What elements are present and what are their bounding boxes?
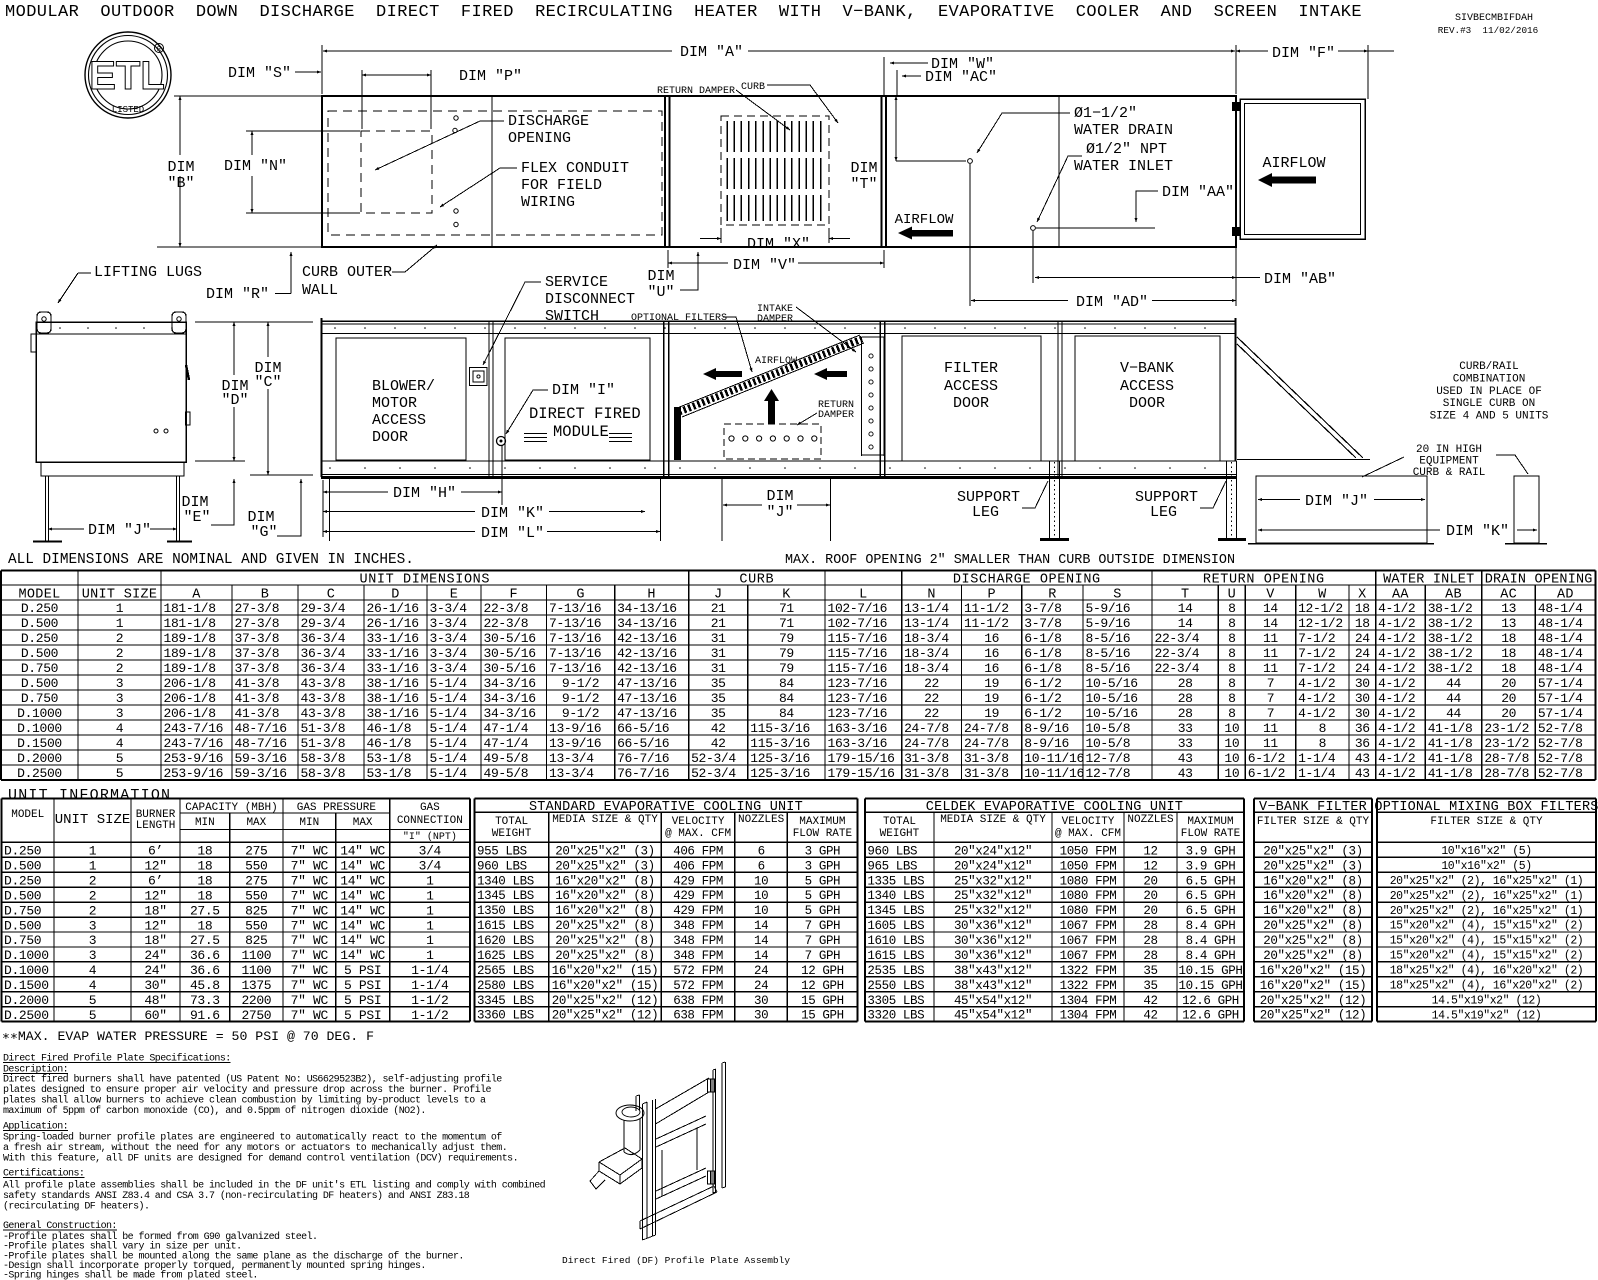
- svg-text:10-5/8: 10-5/8: [1086, 736, 1131, 751]
- svg-text:1615 LBS: 1615 LBS: [867, 949, 924, 963]
- svg-text:14″ WC: 14″ WC: [340, 858, 385, 873]
- svg-text:11-1/2: 11-1/2: [964, 616, 1009, 631]
- svg-text:TOTAL: TOTAL: [883, 816, 916, 828]
- svg-text:FLOW RATE: FLOW RATE: [793, 828, 853, 840]
- svg-text:D.750: D.750: [21, 661, 58, 676]
- svg-text:16″x20″x2″ (8): 16″x20″x2″ (8): [1263, 904, 1362, 918]
- svg-text:ACCESS: ACCESS: [1120, 378, 1174, 395]
- svg-text:MODULE: MODULE: [553, 423, 609, 441]
- svg-text:D.500: D.500: [21, 646, 58, 661]
- svg-text:AC: AC: [1500, 587, 1517, 602]
- svg-text:20″x25″x2″ (2), 16″x25″x2″ (1): 20″x25″x2″ (2), 16″x25″x2″ (1): [1390, 890, 1584, 903]
- svg-text:6.5 GPH: 6.5 GPH: [1186, 904, 1236, 918]
- svg-text:Direct fired burners shall hav: Direct fired burners shall have patented…: [3, 1074, 502, 1086]
- svg-text:102-7/16: 102-7/16: [828, 616, 888, 631]
- svg-text:14: 14: [754, 919, 768, 933]
- svg-text:X: X: [1358, 587, 1366, 602]
- svg-text:243-7/16: 243-7/16: [164, 721, 224, 736]
- svg-text:D.1500: D.1500: [17, 736, 62, 751]
- svg-text:R: R: [1048, 587, 1056, 602]
- svg-text:28-7/8: 28-7/8: [1484, 766, 1529, 781]
- svg-text:ACCESS: ACCESS: [944, 378, 998, 395]
- svg-text:2750: 2750: [241, 1008, 271, 1023]
- svg-text:K: K: [782, 587, 791, 602]
- svg-text:16″x20″x2″ (8): 16″x20″x2″ (8): [555, 904, 654, 918]
- svg-text:3: 3: [116, 706, 123, 721]
- svg-text:1620 LBS: 1620 LBS: [477, 934, 534, 948]
- svg-text:DIM ″L″: DIM ″L″: [481, 525, 544, 542]
- svg-text:DIM ″X″: DIM ″X″: [747, 236, 810, 253]
- svg-text:52-7/8: 52-7/8: [1538, 766, 1583, 781]
- svg-text:66-5/16: 66-5/16: [617, 721, 669, 736]
- svg-text:E: E: [450, 587, 458, 602]
- svg-text:H: H: [647, 587, 655, 602]
- svg-text:D.500: D.500: [21, 616, 58, 631]
- svg-text:16″x20″x2″ (8): 16″x20″x2″ (8): [555, 874, 654, 888]
- svg-text:30-5/16: 30-5/16: [484, 661, 536, 676]
- svg-text:13-9/16: 13-9/16: [549, 736, 601, 751]
- svg-text:20″x25″x2″ (3): 20″x25″x2″ (3): [1263, 859, 1362, 873]
- svg-text:7″ WC: 7″ WC: [291, 948, 329, 963]
- svg-text:22-3/4: 22-3/4: [1155, 631, 1200, 646]
- svg-text:38-1/2: 38-1/2: [1428, 601, 1473, 616]
- svg-text:5: 5: [89, 1008, 96, 1023]
- svg-text:25″x32″x12″: 25″x32″x12″: [954, 904, 1032, 918]
- svg-text:35: 35: [711, 676, 726, 691]
- svg-text:WATER INLET: WATER INLET: [1074, 158, 1173, 175]
- svg-text:18-3/4: 18-3/4: [904, 661, 949, 676]
- svg-text:4-1/2: 4-1/2: [1378, 706, 1415, 721]
- svg-text:115-7/16: 115-7/16: [828, 661, 888, 676]
- svg-text:MAXIMUM: MAXIMUM: [799, 816, 845, 828]
- svg-text:5-1/4: 5-1/4: [430, 691, 468, 706]
- svg-text:10: 10: [754, 904, 768, 918]
- svg-text:46-1/8: 46-1/8: [367, 736, 412, 751]
- svg-text:43: 43: [1355, 766, 1370, 781]
- svg-text:33: 33: [1178, 736, 1193, 751]
- svg-text:AIRFLOW: AIRFLOW: [895, 212, 954, 228]
- svg-text:7″ WC: 7″ WC: [291, 993, 329, 1008]
- svg-text:14″ WC: 14″ WC: [340, 844, 385, 859]
- svg-text:1-1/2: 1-1/2: [411, 993, 448, 1008]
- svg-text:1610 LBS: 1610 LBS: [867, 934, 924, 948]
- svg-text:V−BANK FILTER: V−BANK FILTER: [1259, 800, 1367, 815]
- svg-text:955 LBS: 955 LBS: [477, 844, 527, 858]
- svg-text:1322 FPM: 1322 FPM: [1060, 964, 1117, 978]
- svg-text:20: 20: [1143, 874, 1157, 888]
- svg-text:115-3/16: 115-3/16: [750, 721, 810, 736]
- svg-text:52-7/8: 52-7/8: [1538, 736, 1583, 751]
- svg-text:18: 18: [1501, 631, 1516, 646]
- svg-text:12-7/8: 12-7/8: [1086, 766, 1131, 781]
- svg-text:J: J: [714, 587, 722, 602]
- svg-text:43-3/8: 43-3/8: [301, 691, 346, 706]
- svg-text:42-13/16: 42-13/16: [617, 631, 677, 646]
- svg-text:53-1/8: 53-1/8: [367, 766, 412, 781]
- svg-text:429 FPM: 429 FPM: [673, 889, 723, 903]
- svg-text:38″x43″x12″: 38″x43″x12″: [954, 964, 1032, 978]
- svg-text:maximum of 5ppm of carbon mono: maximum of 5ppm of carbon monoxide (CO),…: [3, 1105, 426, 1117]
- svg-text:960 LBS: 960 LBS: [477, 859, 527, 873]
- svg-text:4-1/2: 4-1/2: [1378, 601, 1415, 616]
- svg-text:1322 FPM: 1322 FPM: [1060, 979, 1117, 993]
- svg-text:UNIT SIZE: UNIT SIZE: [55, 812, 131, 828]
- svg-text:2: 2: [116, 646, 123, 661]
- svg-text:WATER INLET: WATER INLET: [1383, 573, 1474, 588]
- svg-text:20″x25″x2″ (8): 20″x25″x2″ (8): [555, 934, 654, 948]
- svg-text:19: 19: [984, 691, 999, 706]
- svg-text:19: 19: [984, 676, 999, 691]
- svg-text:30″x36″x12″: 30″x36″x12″: [954, 919, 1032, 933]
- svg-text:4-1/2: 4-1/2: [1378, 736, 1415, 751]
- svg-text:30″x36″x12″: 30″x36″x12″: [954, 934, 1032, 948]
- svg-text:30: 30: [1355, 676, 1370, 691]
- svg-text:52-3/4: 52-3/4: [691, 766, 736, 781]
- svg-text:LEG: LEG: [1150, 504, 1177, 521]
- svg-text:7-13/16: 7-13/16: [549, 616, 601, 631]
- svg-text:10-5/8: 10-5/8: [1086, 721, 1131, 736]
- svg-text:179-15/16: 179-15/16: [828, 766, 895, 781]
- svg-text:34-13/16: 34-13/16: [617, 601, 677, 616]
- svg-text:14: 14: [754, 934, 768, 948]
- svg-text:6: 6: [758, 844, 765, 858]
- svg-text:79: 79: [779, 661, 794, 676]
- svg-text:30″: 30″: [144, 978, 166, 993]
- svg-text:6’: 6’: [148, 844, 163, 859]
- svg-text:638 FPM: 638 FPM: [673, 994, 723, 1008]
- svg-text:429 FPM: 429 FPM: [673, 904, 723, 918]
- svg-text:243-7/16: 243-7/16: [164, 736, 224, 751]
- svg-text:58-3/8: 58-3/8: [301, 751, 346, 766]
- svg-text:44: 44: [1446, 706, 1461, 721]
- svg-text:G: G: [576, 587, 584, 602]
- svg-text:4-1/2: 4-1/2: [1378, 691, 1415, 706]
- svg-text:DIM: DIM: [167, 159, 194, 176]
- svg-text:6-1/2: 6-1/2: [1024, 706, 1061, 721]
- svg-text:18″x25″x2″ (4), 16″x20″x2″ (2): 18″x25″x2″ (4), 16″x20″x2″ (2): [1390, 979, 1584, 992]
- svg-text:206-1/8: 206-1/8: [164, 706, 216, 721]
- svg-text:MAX. ROOF OPENING 2″ SMALLER T: MAX. ROOF OPENING 2″ SMALLER THAN CURB O…: [785, 553, 1235, 568]
- svg-text:19: 19: [984, 706, 999, 721]
- svg-text:6.5 GPH: 6.5 GPH: [1186, 889, 1236, 903]
- svg-text:1067 FPM: 1067 FPM: [1060, 919, 1117, 933]
- svg-text:All profile plate assemblies s: All profile plate assemblies shall be in…: [3, 1180, 546, 1192]
- svg-text:14.5″x19″x2″ (12): 14.5″x19″x2″ (12): [1432, 1009, 1542, 1022]
- svg-text:8: 8: [1228, 661, 1235, 676]
- svg-text:6-1/8: 6-1/8: [1024, 661, 1061, 676]
- svg-text:42: 42: [711, 736, 726, 751]
- svg-text:1615 LBS: 1615 LBS: [477, 919, 534, 933]
- svg-text:41-1/8: 41-1/8: [1428, 736, 1473, 751]
- svg-text:MIN: MIN: [299, 817, 319, 829]
- svg-text:REV.#3 11/02/2016: REV.#3 11/02/2016: [1438, 25, 1538, 36]
- svg-text:41-3/8: 41-3/8: [235, 676, 280, 691]
- svg-text:30: 30: [1355, 706, 1370, 721]
- svg-text:9-1/2: 9-1/2: [562, 691, 599, 706]
- svg-text:3360 LBS: 3360 LBS: [477, 1009, 534, 1023]
- svg-text:26-1/16: 26-1/16: [367, 616, 419, 631]
- svg-text:D.750: D.750: [4, 903, 41, 918]
- svg-text:D.250: D.250: [21, 601, 58, 616]
- svg-text:36.6: 36.6: [190, 963, 220, 978]
- svg-text:Spring-loaded burner profile p: Spring-loaded burner profile plates are …: [3, 1132, 502, 1144]
- svg-text:48-1/4: 48-1/4: [1538, 646, 1583, 661]
- svg-text:1: 1: [426, 903, 434, 918]
- svg-text:30: 30: [1355, 691, 1370, 706]
- svg-text:7″ WC: 7″ WC: [291, 978, 329, 993]
- svg-text:28: 28: [1143, 949, 1157, 963]
- svg-text:13-3/4: 13-3/4: [549, 751, 594, 766]
- svg-text:7″ WC: 7″ WC: [291, 933, 329, 948]
- svg-text:LIFTING LUGS: LIFTING LUGS: [94, 264, 202, 281]
- svg-text:43: 43: [1355, 751, 1370, 766]
- svg-text:3: 3: [89, 948, 96, 963]
- svg-text:34-3/16: 34-3/16: [484, 691, 536, 706]
- svg-text:D.2000: D.2000: [17, 751, 62, 766]
- svg-text:AIRFLOW: AIRFLOW: [1262, 155, 1325, 172]
- svg-text:4-1/2: 4-1/2: [1298, 691, 1335, 706]
- svg-text:Direct Fired (DF) Profile Plat: Direct Fired (DF) Profile Plate Assembly: [562, 1255, 790, 1266]
- svg-text:7″ WC: 7″ WC: [291, 1008, 329, 1023]
- svg-text:3-3/4: 3-3/4: [430, 616, 468, 631]
- svg-text:CURB: CURB: [741, 82, 765, 93]
- svg-text:D.750: D.750: [21, 691, 58, 706]
- svg-text:31-3/8: 31-3/8: [904, 751, 949, 766]
- svg-text:DIM ″AD″: DIM ″AD″: [1076, 294, 1148, 311]
- svg-text:WIRING: WIRING: [521, 194, 575, 211]
- svg-text:1605 LBS: 1605 LBS: [867, 919, 924, 933]
- svg-text:B: B: [261, 587, 269, 602]
- svg-text:1: 1: [116, 616, 124, 631]
- svg-text:11: 11: [1263, 631, 1278, 646]
- svg-text:With this feature, all DF unit: With this feature, all DF units are desi…: [3, 1152, 518, 1164]
- svg-text:18″x25″x2″ (4), 16″x20″x2″ (2): 18″x25″x2″ (4), 16″x20″x2″ (2): [1390, 965, 1584, 978]
- svg-text:13-1/4: 13-1/4: [904, 616, 949, 631]
- svg-text:1067 FPM: 1067 FPM: [1060, 934, 1117, 948]
- svg-text:DRAIN OPENING: DRAIN OPENING: [1485, 573, 1593, 588]
- svg-text:79: 79: [779, 631, 794, 646]
- svg-text:18: 18: [197, 888, 212, 903]
- svg-text:20: 20: [1143, 904, 1157, 918]
- svg-text:L: L: [859, 587, 867, 602]
- svg-text:RETURN DAMPER: RETURN DAMPER: [657, 86, 735, 97]
- svg-text:@ MAX. CFM: @ MAX. CFM: [1055, 828, 1121, 840]
- svg-text:R: R: [157, 47, 162, 53]
- svg-text:28: 28: [1143, 934, 1157, 948]
- svg-text:DAMPER: DAMPER: [818, 410, 854, 421]
- svg-text:8-9/16: 8-9/16: [1024, 736, 1069, 751]
- svg-text:U: U: [1228, 587, 1236, 602]
- svg-text:38-1/2: 38-1/2: [1428, 646, 1473, 661]
- svg-text:D.250: D.250: [21, 631, 58, 646]
- svg-text:5 GPH: 5 GPH: [805, 889, 841, 903]
- svg-text:163-3/16: 163-3/16: [828, 721, 888, 736]
- svg-text:406 FPM: 406 FPM: [673, 859, 723, 873]
- svg-text:23-1/2: 23-1/2: [1484, 736, 1529, 751]
- svg-text:123-7/16: 123-7/16: [828, 706, 888, 721]
- svg-text:AA: AA: [1392, 587, 1409, 602]
- svg-text:5-9/16: 5-9/16: [1086, 616, 1131, 631]
- svg-text:189-1/8: 189-1/8: [164, 646, 216, 661]
- svg-text:15 GPH: 15 GPH: [801, 1009, 844, 1023]
- svg-text:5 GPH: 5 GPH: [805, 904, 841, 918]
- svg-text:10-11/16: 10-11/16: [1024, 766, 1084, 781]
- svg-text:18-3/4: 18-3/4: [904, 631, 949, 646]
- svg-text:1: 1: [89, 858, 97, 873]
- svg-text:30-5/16: 30-5/16: [484, 646, 536, 661]
- svg-text:27-3/8: 27-3/8: [235, 601, 280, 616]
- svg-text:31: 31: [711, 646, 726, 661]
- svg-text:15″x20″x2″ (4), 15″x15″x2″ (2): 15″x20″x2″ (4), 15″x15″x2″ (2): [1390, 935, 1584, 948]
- svg-text:8: 8: [1228, 646, 1235, 661]
- svg-text:″U″: ″U″: [647, 284, 674, 301]
- svg-text:275: 275: [245, 873, 267, 888]
- svg-text:125-3/16: 125-3/16: [750, 766, 810, 781]
- svg-text:35: 35: [711, 691, 726, 706]
- svg-text:DIM ″S″: DIM ″S″: [228, 65, 291, 82]
- svg-text:1: 1: [426, 933, 434, 948]
- svg-text:WEIGHT: WEIGHT: [492, 828, 532, 840]
- svg-text:5-1/4: 5-1/4: [430, 706, 468, 721]
- svg-text:31-3/8: 31-3/8: [964, 751, 1009, 766]
- svg-text:57-1/4: 57-1/4: [1538, 691, 1583, 706]
- svg-text:47-13/16: 47-13/16: [617, 706, 677, 721]
- svg-text:825: 825: [245, 903, 267, 918]
- svg-text:7-13/16: 7-13/16: [549, 601, 601, 616]
- svg-text:30″x36″x12″: 30″x36″x12″: [954, 949, 1032, 963]
- svg-text:84: 84: [779, 706, 794, 721]
- svg-text:20″x25″x2″ (8): 20″x25″x2″ (8): [555, 919, 654, 933]
- svg-text:11-1/2: 11-1/2: [964, 601, 1009, 616]
- svg-text:3305 LBS: 3305 LBS: [867, 994, 924, 1008]
- svg-text:DIM ″AA″: DIM ″AA″: [1162, 184, 1234, 201]
- svg-text:7″ WC: 7″ WC: [291, 903, 329, 918]
- svg-text:SERVICE: SERVICE: [545, 274, 608, 291]
- svg-text:1350 LBS: 1350 LBS: [477, 904, 534, 918]
- svg-text:5: 5: [89, 993, 96, 1008]
- svg-text:44: 44: [1446, 676, 1461, 691]
- svg-text:8-5/16: 8-5/16: [1086, 631, 1131, 646]
- svg-text:5 PSI: 5 PSI: [344, 993, 381, 1008]
- svg-text:GAS: GAS: [420, 802, 440, 814]
- svg-text:38-1/16: 38-1/16: [367, 706, 419, 721]
- svg-text:10″x16″x2″ (5): 10″x16″x2″ (5): [1441, 860, 1531, 873]
- svg-text:1335 LBS: 1335 LBS: [867, 874, 924, 888]
- svg-text:7-13/16: 7-13/16: [549, 631, 601, 646]
- svg-text:12.6 GPH: 12.6 GPH: [1182, 1009, 1239, 1023]
- svg-text:14″ WC: 14″ WC: [340, 903, 385, 918]
- svg-text:5-1/4: 5-1/4: [430, 751, 468, 766]
- svg-text:1-1/4: 1-1/4: [1298, 766, 1336, 781]
- svg-text:115-7/16: 115-7/16: [828, 631, 888, 646]
- svg-text:UNIT INFORMATION: UNIT INFORMATION: [8, 787, 171, 804]
- svg-text:28: 28: [1178, 691, 1193, 706]
- svg-text:7-13/16: 7-13/16: [549, 646, 601, 661]
- svg-text:206-1/8: 206-1/8: [164, 676, 216, 691]
- svg-text:4-1/2: 4-1/2: [1378, 721, 1415, 736]
- svg-text:11: 11: [1263, 661, 1278, 676]
- svg-text:42: 42: [1143, 1009, 1157, 1023]
- svg-text:a fresh air stream, without th: a fresh air stream, without the need for…: [3, 1142, 507, 1154]
- svg-text:550: 550: [245, 918, 267, 933]
- svg-text:5-1/4: 5-1/4: [430, 736, 468, 751]
- svg-text:4-1/2: 4-1/2: [1378, 631, 1415, 646]
- svg-text:18: 18: [1355, 616, 1370, 631]
- svg-text:2: 2: [89, 888, 96, 903]
- svg-text:14″ WC: 14″ WC: [340, 933, 385, 948]
- svg-text:181-1/8: 181-1/8: [164, 601, 216, 616]
- svg-text:3-3/4: 3-3/4: [430, 631, 468, 646]
- svg-text:34-3/16: 34-3/16: [484, 706, 536, 721]
- svg-text:37-3/8: 37-3/8: [235, 661, 280, 676]
- svg-text:7 GPH: 7 GPH: [805, 934, 841, 948]
- svg-text:12″: 12″: [144, 888, 166, 903]
- svg-text:8.4 GPH: 8.4 GPH: [1186, 949, 1236, 963]
- svg-text:11: 11: [1263, 646, 1278, 661]
- svg-text:2: 2: [116, 631, 123, 646]
- svg-text:3-3/4: 3-3/4: [430, 601, 468, 616]
- svg-text:11: 11: [1263, 721, 1278, 736]
- svg-text:2535 LBS: 2535 LBS: [867, 964, 924, 978]
- svg-text:3345 LBS: 3345 LBS: [477, 994, 534, 1008]
- svg-text:52-7/8: 52-7/8: [1538, 721, 1583, 736]
- svg-text:57-1/4: 57-1/4: [1538, 706, 1583, 721]
- svg-text:5: 5: [116, 766, 123, 781]
- svg-text:10.15 GPH: 10.15 GPH: [1179, 979, 1243, 993]
- svg-text:DAMPER: DAMPER: [757, 314, 793, 325]
- svg-text:MIN: MIN: [195, 817, 215, 829]
- svg-text:20: 20: [1501, 691, 1516, 706]
- svg-text:20″x25″x2″ (3): 20″x25″x2″ (3): [555, 844, 654, 858]
- svg-text:10-11/16: 10-11/16: [1024, 751, 1084, 766]
- svg-text:FILTER SIZE & QTY: FILTER SIZE & QTY: [1257, 816, 1370, 828]
- svg-text:20″x25″x2″ (12): 20″x25″x2″ (12): [552, 994, 659, 1008]
- svg-text:D.750: D.750: [4, 933, 41, 948]
- svg-text:18: 18: [197, 858, 212, 873]
- svg-text:RETURN OPENING: RETURN OPENING: [1203, 573, 1325, 588]
- svg-text:20″x24″x12″: 20″x24″x12″: [954, 859, 1032, 873]
- svg-text:D: D: [391, 587, 399, 602]
- svg-text:8.4 GPH: 8.4 GPH: [1186, 934, 1236, 948]
- svg-text:4-1/2: 4-1/2: [1298, 676, 1335, 691]
- svg-text:LENGTH: LENGTH: [136, 820, 176, 832]
- svg-text:25″x32″x12″: 25″x32″x12″: [954, 889, 1032, 903]
- svg-text:163-3/16: 163-3/16: [828, 736, 888, 751]
- svg-text:CURB OUTER: CURB OUTER: [302, 264, 392, 281]
- svg-text:48-7/16: 48-7/16: [235, 736, 287, 751]
- svg-text:5-1/4: 5-1/4: [430, 766, 468, 781]
- svg-text:DIM: DIM: [850, 160, 877, 177]
- svg-text:C: C: [327, 587, 335, 602]
- svg-text:1625 LBS: 1625 LBS: [477, 949, 534, 963]
- svg-text:52-3/4: 52-3/4: [691, 751, 736, 766]
- svg-text:45.8: 45.8: [190, 978, 220, 993]
- svg-text:14: 14: [1263, 616, 1278, 631]
- svg-text:18″: 18″: [144, 933, 166, 948]
- svg-text:18: 18: [1501, 646, 1516, 661]
- svg-text:8: 8: [1319, 736, 1326, 751]
- svg-text:27-3/8: 27-3/8: [235, 616, 280, 631]
- svg-text:3: 3: [116, 691, 123, 706]
- svg-text:24-7/8: 24-7/8: [904, 736, 949, 751]
- svg-text:18: 18: [197, 844, 212, 859]
- svg-text:20″x25″x2″ (8): 20″x25″x2″ (8): [1263, 919, 1362, 933]
- svg-text:7 GPH: 7 GPH: [805, 949, 841, 963]
- svg-text:8: 8: [1228, 631, 1235, 646]
- svg-text:16: 16: [984, 646, 999, 661]
- svg-text:23-1/2: 23-1/2: [1484, 721, 1529, 736]
- svg-text:1340 LBS: 1340 LBS: [867, 889, 924, 903]
